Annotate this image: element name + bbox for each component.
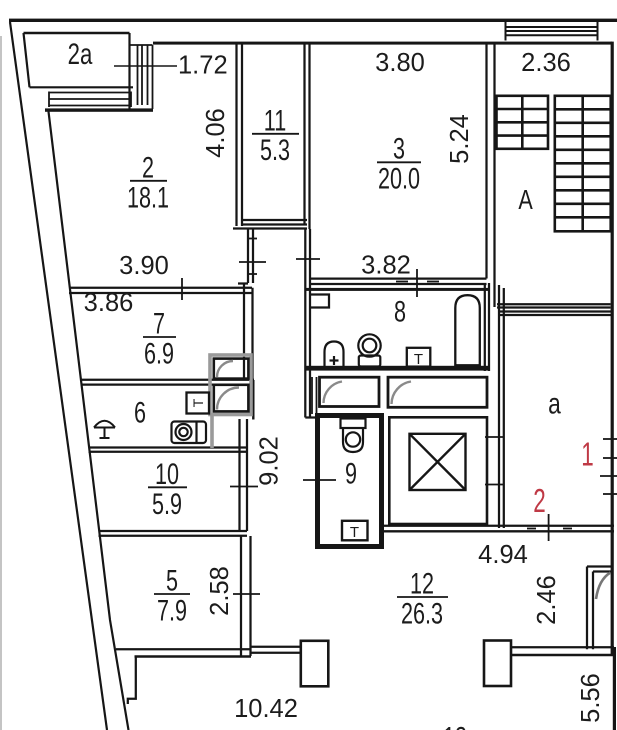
- svg-text:Т: Т: [190, 398, 206, 407]
- svg-text:2.46: 2.46: [533, 575, 561, 625]
- svg-text:4.06: 4.06: [202, 108, 230, 158]
- svg-text:а: а: [548, 386, 561, 420]
- svg-text:2.58: 2.58: [206, 566, 234, 616]
- svg-text:26.3: 26.3: [401, 596, 443, 630]
- svg-text:5.9: 5.9: [152, 486, 182, 520]
- svg-text:7.9: 7.9: [157, 593, 187, 627]
- svg-text:1.72: 1.72: [178, 52, 228, 80]
- svg-text:5.56: 5.56: [577, 673, 605, 723]
- svg-text:20.0: 20.0: [378, 161, 420, 195]
- svg-text:3.90: 3.90: [119, 252, 169, 280]
- svg-text:9: 9: [345, 456, 357, 490]
- svg-text:10.42: 10.42: [234, 695, 298, 723]
- svg-text:4.94: 4.94: [478, 541, 528, 569]
- svg-text:2.36: 2.36: [521, 49, 571, 77]
- svg-text:3.82: 3.82: [361, 252, 411, 280]
- svg-text:Т: Т: [350, 524, 359, 541]
- svg-text:6: 6: [134, 395, 146, 429]
- svg-text:3.86: 3.86: [84, 289, 134, 317]
- svg-text:Т: Т: [414, 351, 423, 368]
- svg-text:18.1: 18.1: [127, 180, 169, 214]
- svg-text:5.24: 5.24: [446, 114, 474, 164]
- svg-text:3.80: 3.80: [375, 49, 425, 77]
- svg-text:5.3: 5.3: [260, 133, 290, 167]
- svg-text:8: 8: [394, 294, 406, 328]
- svg-text:9.02: 9.02: [256, 436, 284, 486]
- svg-text:1: 1: [581, 435, 593, 472]
- svg-text:2a: 2a: [68, 37, 93, 71]
- svg-text:6.9: 6.9: [144, 336, 174, 370]
- svg-text:А: А: [518, 184, 533, 215]
- svg-text:2: 2: [533, 482, 545, 519]
- svg-text:13: 13: [443, 720, 467, 730]
